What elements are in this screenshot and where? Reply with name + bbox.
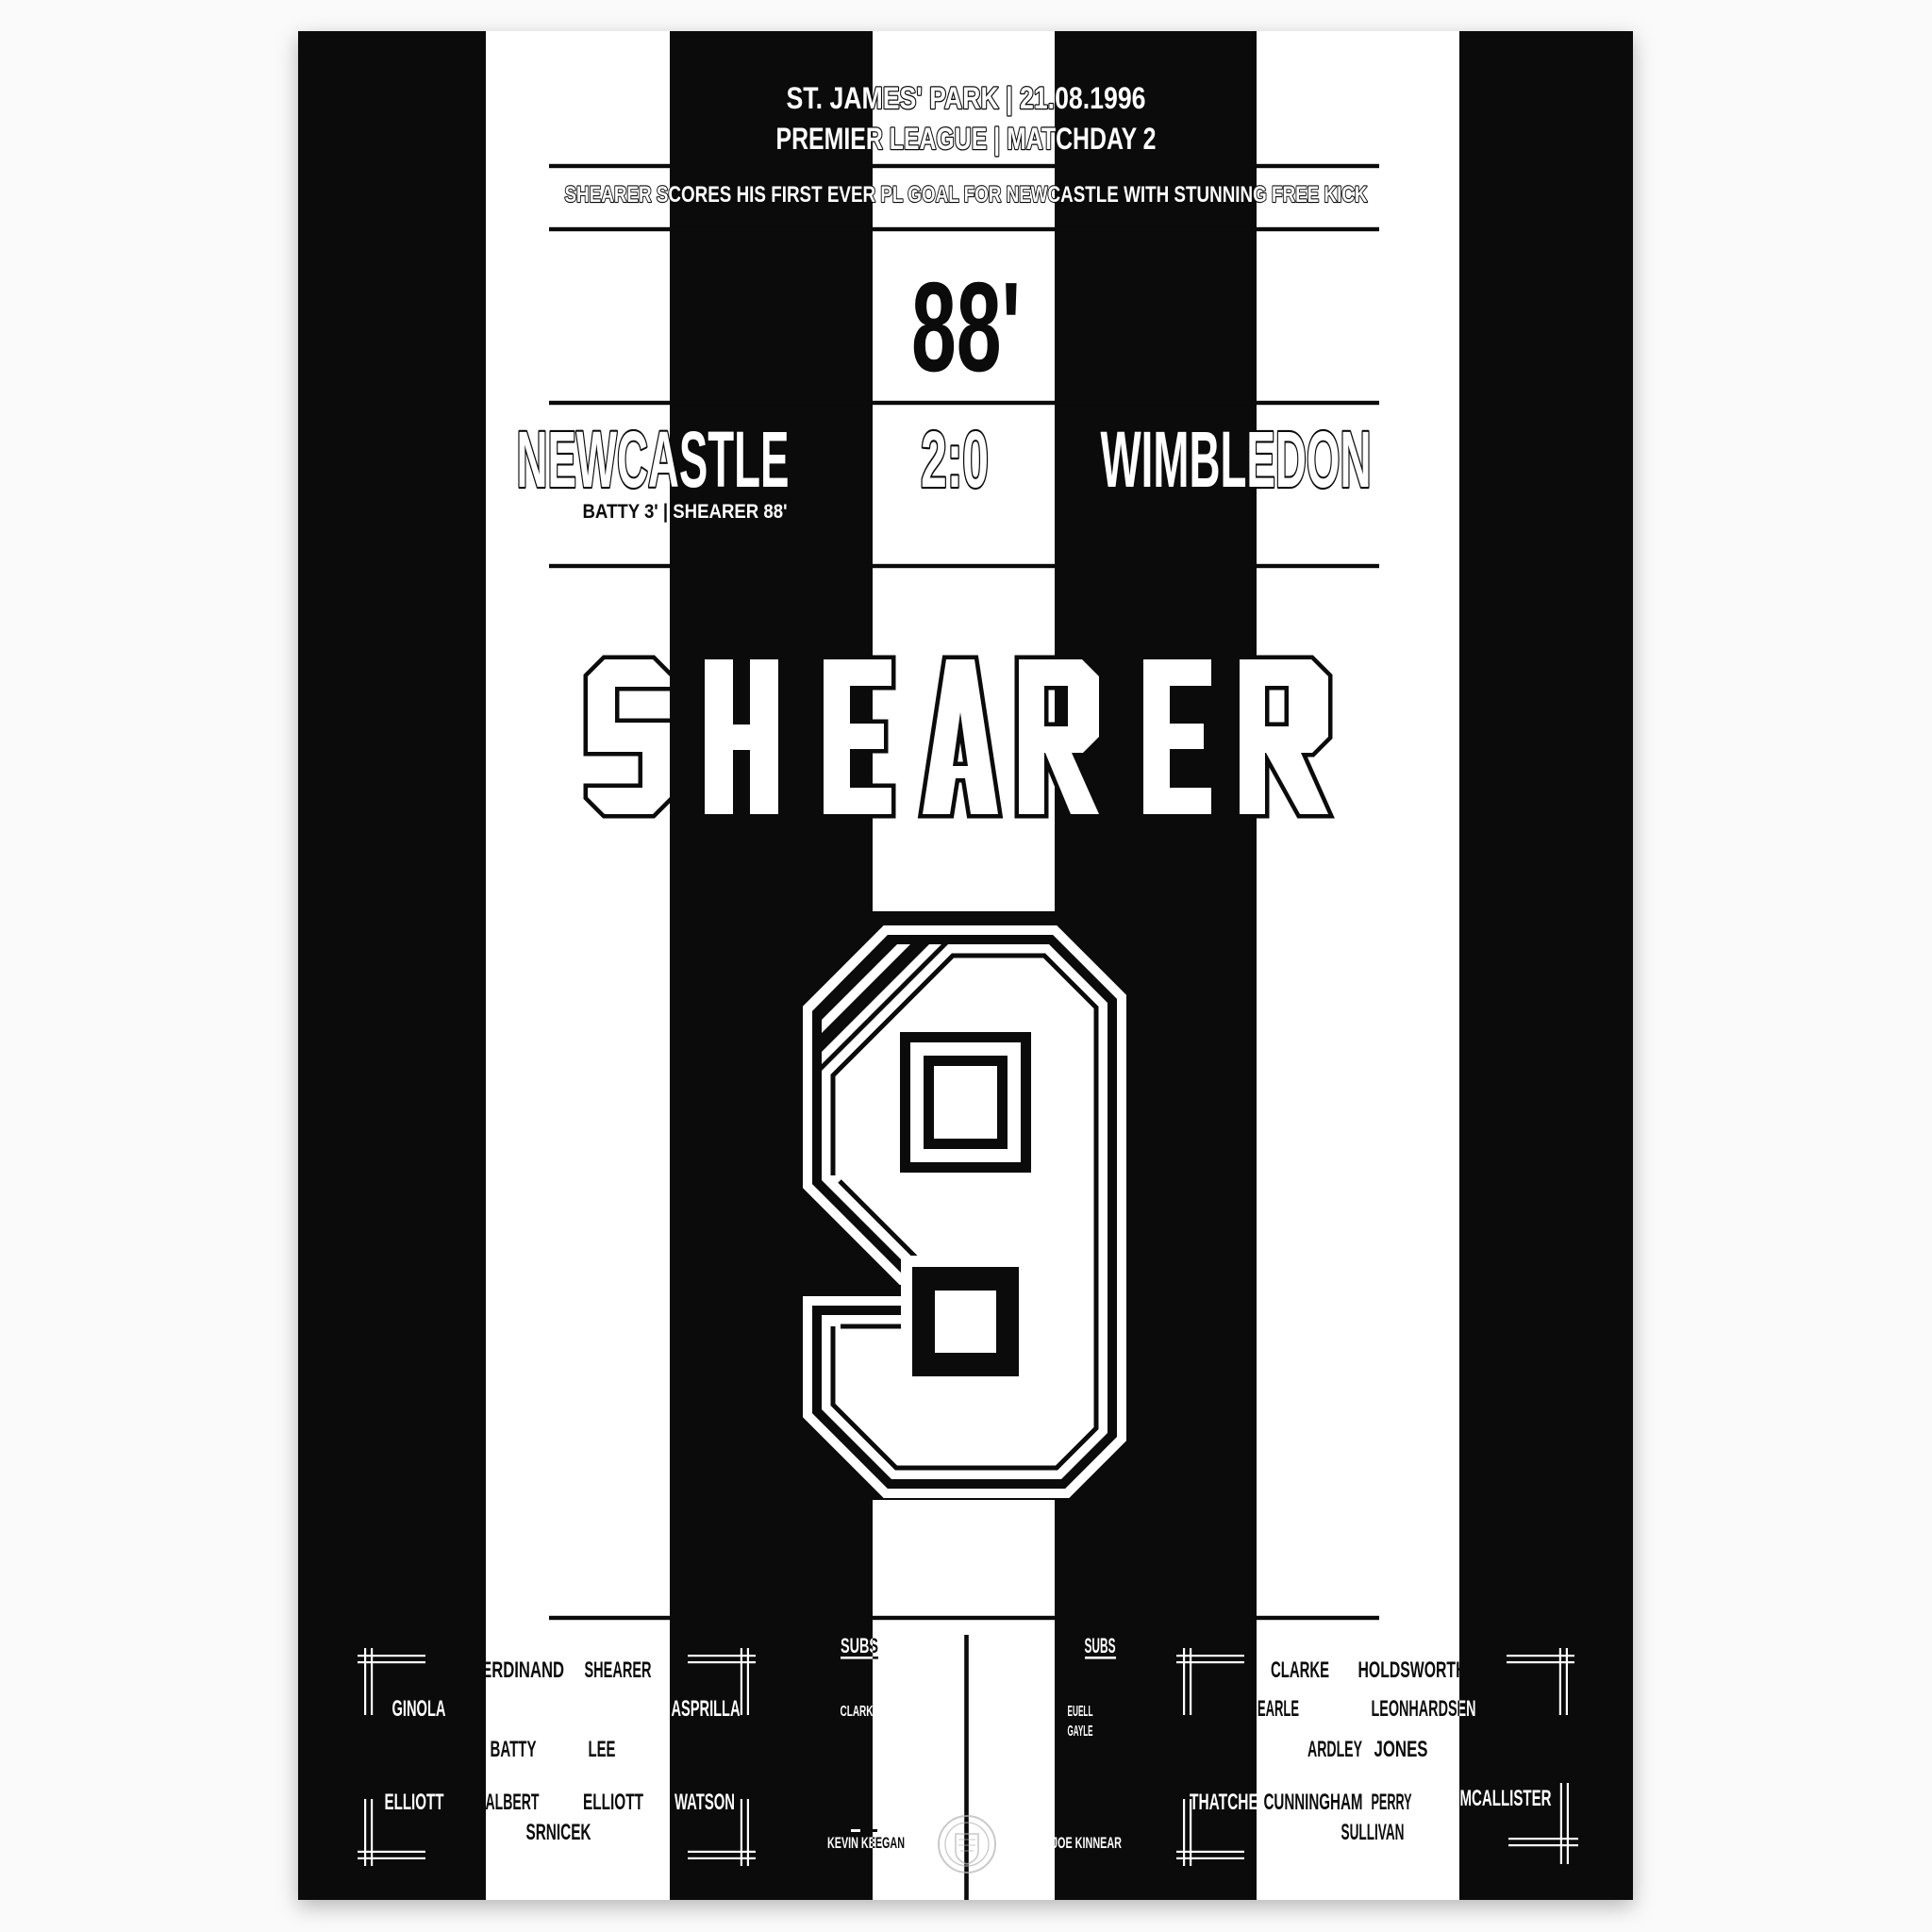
svg-text:NEWCASTLE: NEWCASTLE (517, 415, 790, 504)
svg-text:WIMBLEDON: WIMBLEDON (1101, 415, 1372, 504)
svg-text:LEE: LEE (589, 1737, 616, 1762)
svg-text:ST. JAMES' PARK | 21.08.1996: ST. JAMES' PARK | 21.08.1996 (787, 81, 1146, 115)
svg-text:SULLIVAN: SULLIVAN (1341, 1820, 1405, 1845)
svg-text:SUBS: SUBS (841, 1634, 878, 1657)
svg-text:THATCHER: THATCHER (1190, 1790, 1269, 1815)
svg-text:ALBERT: ALBERT (486, 1790, 540, 1815)
svg-text:GINOLA: GINOLA (392, 1696, 446, 1722)
svg-text:ARDLEY: ARDLEY (1307, 1737, 1362, 1762)
svg-text:JOE KINNEAR: JOE KINNEAR (1052, 1834, 1122, 1852)
svg-text:SUBS: SUBS (1085, 1634, 1116, 1657)
svg-text:ASPRILLA: ASPRILLA (672, 1696, 741, 1722)
svg-text:ELLIOTT: ELLIOTT (385, 1790, 444, 1815)
svg-text:SRNICEK: SRNICEK (526, 1820, 591, 1845)
svg-text:88': 88' (911, 256, 1021, 398)
svg-text:SHEARER: SHEARER (585, 1657, 652, 1683)
svg-text:EARLE: EARLE (1257, 1696, 1299, 1722)
svg-text:ELLIOTT: ELLIOTT (583, 1790, 643, 1815)
svg-text:GAYLE: GAYLE (1068, 1724, 1093, 1740)
svg-text:JONES: JONES (1374, 1737, 1428, 1762)
svg-text:PERRY: PERRY (1372, 1790, 1412, 1815)
svg-text:CLARKE: CLARKE (1271, 1657, 1329, 1683)
svg-text:2:0: 2:0 (921, 415, 989, 504)
svg-text:CUNNINGHAM: CUNNINGHAM (1264, 1790, 1363, 1815)
svg-text:MCALLISTER: MCALLISTER (1460, 1786, 1552, 1811)
svg-text:BATTY: BATTY (491, 1737, 537, 1762)
svg-text:EUELL: EUELL (1068, 1704, 1093, 1720)
svg-text:HOLDSWORTH: HOLDSWORTH (1358, 1657, 1467, 1683)
svg-text:PREMIER LEAGUE | MATCHDAY 2: PREMIER LEAGUE | MATCHDAY 2 (776, 122, 1157, 156)
svg-text:CLARK: CLARK (841, 1704, 874, 1720)
svg-text:SHEARER SCORES HIS FIRST EVER: SHEARER SCORES HIS FIRST EVER PL GOAL FO… (565, 182, 1369, 208)
svg-text:FERDINAND: FERDINAND (472, 1657, 564, 1683)
svg-text:WATSON: WATSON (675, 1790, 735, 1815)
